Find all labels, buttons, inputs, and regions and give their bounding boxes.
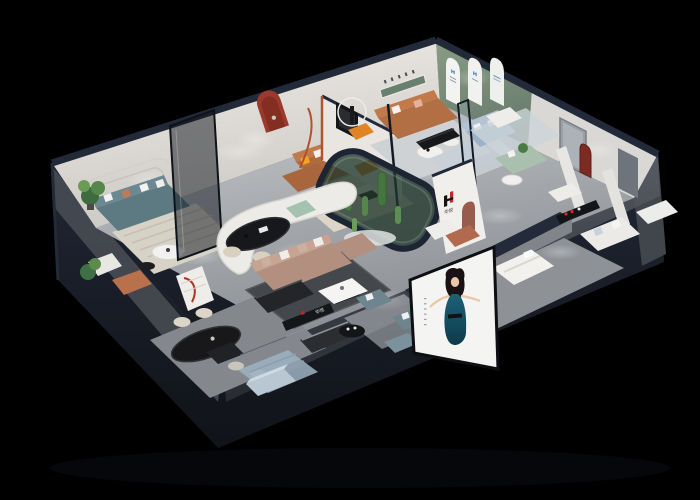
round-table bbox=[502, 175, 522, 185]
cactus bbox=[395, 206, 401, 224]
ground-shadow bbox=[50, 448, 670, 488]
sculpture bbox=[350, 106, 354, 124]
model-face bbox=[451, 277, 459, 287]
small-plant bbox=[518, 143, 528, 153]
red-accent bbox=[564, 212, 567, 215]
black-round-table bbox=[339, 325, 365, 338]
cactus bbox=[362, 196, 368, 216]
table-decor bbox=[340, 286, 344, 290]
white-accent bbox=[578, 208, 581, 211]
red-accent bbox=[570, 210, 573, 213]
dark-glass-showcase bbox=[170, 110, 222, 260]
table-decor bbox=[166, 248, 170, 252]
cream-chair bbox=[223, 247, 241, 258]
black-side-table bbox=[139, 262, 155, 270]
showroom-scene: H H bbox=[0, 0, 700, 500]
showroom-render: H H bbox=[0, 0, 700, 500]
cup bbox=[354, 327, 357, 330]
cream-chair bbox=[174, 317, 191, 327]
cup bbox=[347, 328, 350, 331]
cream-chair bbox=[196, 308, 213, 318]
logo-red-bar bbox=[450, 191, 453, 203]
model-teal-dress bbox=[444, 294, 466, 345]
cactus-small bbox=[352, 218, 357, 232]
cactus-tall bbox=[378, 172, 386, 206]
